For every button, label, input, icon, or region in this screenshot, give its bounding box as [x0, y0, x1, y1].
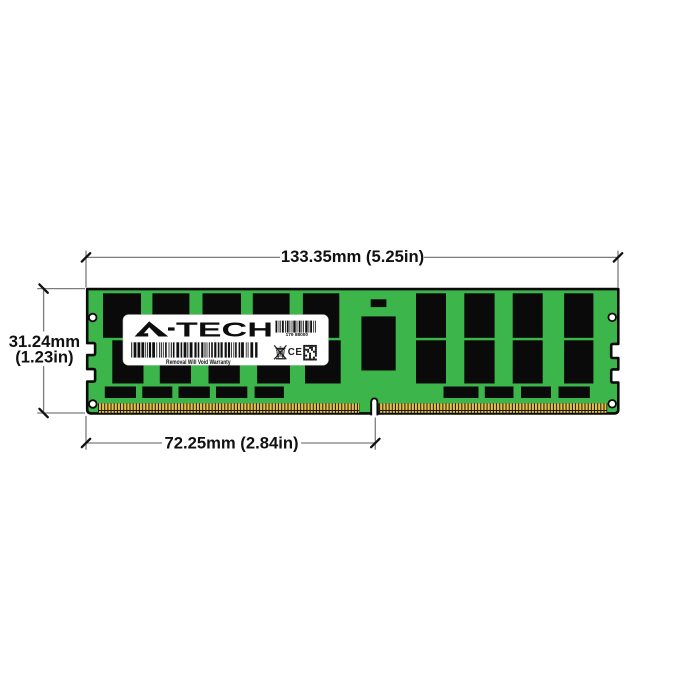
svg-text:133.35mm (5.25in): 133.35mm (5.25in): [281, 247, 424, 266]
svg-text:179 88000: 179 88000: [286, 332, 309, 338]
svg-text:Removal Will Void Warranty: Removal Will Void Warranty: [166, 360, 231, 366]
svg-text:CE: CE: [288, 347, 303, 358]
svg-text:(1.23in): (1.23in): [15, 348, 73, 367]
svg-text:TECH: TECH: [176, 319, 273, 341]
svg-text:72.25mm (2.84in): 72.25mm (2.84in): [164, 434, 298, 453]
